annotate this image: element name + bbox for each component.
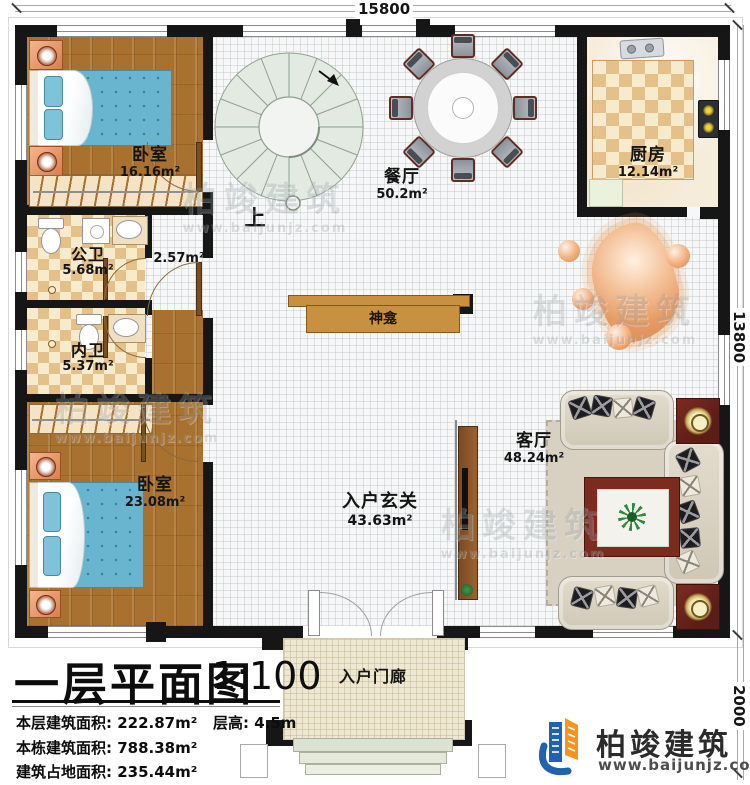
room-label-private-bath: 内卫5.37m² — [36, 342, 140, 375]
plan-scale: 1:100 — [212, 654, 322, 698]
nightstand — [29, 146, 63, 176]
dimension-top: 15800 — [355, 0, 413, 18]
nightstand — [29, 590, 61, 618]
kitchen-wall-bottom — [577, 207, 700, 217]
window-bottom-bedroom2 — [48, 626, 148, 638]
dining-chair — [389, 96, 413, 120]
room-label-public-bath: 公卫5.68m² — [36, 246, 140, 279]
title-rule-heavy — [12, 700, 280, 703]
dimension-line — [743, 25, 744, 780]
window-left-bedroom2 — [15, 470, 27, 565]
sofa-pillow — [679, 527, 701, 549]
side-table — [676, 398, 720, 444]
stair-area-label: 2.57m² — [146, 252, 212, 267]
room-label-porch: 入户门廊 — [303, 668, 443, 686]
info-row-1: 本层建筑面积: 222.87m² 层高: 4.5m — [16, 712, 296, 733]
sofa-pillow — [593, 584, 616, 607]
window-bottom-living1 — [480, 626, 535, 638]
kitchen-door-opening — [687, 207, 700, 217]
dining-table-hub — [452, 97, 474, 119]
stairs-up-label: 上 — [238, 206, 272, 230]
brand-url: www.baijunjz.com — [598, 756, 750, 774]
window-top-stairs — [243, 25, 353, 37]
sofa-pillow — [616, 587, 639, 610]
lamp-icon — [691, 600, 709, 618]
porch-side-pad — [478, 744, 506, 778]
lamp-icon — [691, 414, 709, 432]
pillow — [44, 109, 63, 140]
shrine-table: 神龛 — [306, 305, 460, 333]
decor-sphere — [666, 244, 690, 268]
porch-side-pad — [240, 744, 268, 778]
wall-v2-c — [145, 358, 152, 394]
room-label-kitchen: 厨房12.14m² — [600, 146, 696, 180]
floor-drain — [48, 286, 56, 294]
room-label-bedroom1: 卧室16.16m² — [98, 146, 202, 180]
sink-basin — [116, 220, 142, 239]
corridor-floor — [152, 310, 203, 394]
kitchen-wall-left — [577, 37, 587, 217]
tv-wall-line — [455, 420, 457, 600]
dining-set — [387, 32, 539, 184]
sofa-pillow — [590, 394, 613, 417]
entrance-door-leaf — [432, 590, 444, 636]
column-top-1 — [346, 19, 360, 37]
entrance-door-leaf — [308, 590, 320, 636]
pillow — [43, 536, 61, 576]
porch-step — [305, 764, 441, 775]
tv-cabinet — [458, 426, 478, 600]
dimension-line — [737, 25, 738, 780]
window-top-bedroom1 — [57, 25, 167, 37]
floor-plan: 神龛 — [0, 0, 750, 785]
dining-chair — [451, 34, 475, 58]
porch-step — [293, 738, 453, 752]
kitchen-cabinet — [589, 179, 623, 207]
dimension-porch-depth: 2000 — [730, 682, 748, 730]
room-label-living: 客厅48.24m² — [488, 432, 580, 466]
decor-sphere — [606, 324, 632, 350]
kitchen-sink — [619, 37, 664, 59]
dining-chair — [451, 158, 475, 182]
stove — [698, 100, 719, 138]
room-label-bedroom2: 卧室23.08m² — [100, 476, 210, 510]
window-right-living — [718, 335, 730, 405]
porch-step — [299, 752, 447, 764]
window-left-public-bath — [15, 252, 27, 292]
room-label-dining: 餐厅50.2m² — [352, 168, 452, 202]
pillow — [44, 76, 63, 107]
washing-machine — [82, 218, 110, 244]
kitchen-corner-column — [700, 207, 718, 219]
column-bottom-1 — [146, 622, 166, 642]
wall-h3 — [27, 394, 203, 402]
wall-v1-c — [203, 318, 213, 405]
wall-h2 — [27, 300, 145, 308]
title-rule-light — [12, 706, 280, 707]
pillow — [43, 492, 61, 532]
window-left-bedroom1 — [15, 85, 27, 160]
window-left-private-bath — [15, 330, 27, 370]
nightstand — [29, 40, 63, 70]
info-row-3: 建筑占地面积: 235.44m² — [16, 761, 197, 782]
coffee-table — [584, 477, 680, 557]
side-table — [676, 584, 720, 630]
shrine-label: 神龛 — [369, 311, 397, 327]
tv-screen — [462, 468, 468, 530]
wardrobe — [29, 404, 153, 434]
window-right-kitchen — [718, 60, 730, 130]
decor-sphere — [572, 288, 594, 310]
dining-chair — [513, 96, 537, 120]
decor-sphere — [558, 240, 580, 262]
sofa-pillow — [678, 474, 701, 497]
spiral-stairs — [209, 37, 367, 217]
room-label-foyer: 入户玄关43.63m² — [322, 492, 438, 529]
brand-logo-icon — [536, 714, 590, 776]
dimension-right: 13800 — [730, 308, 748, 366]
nightstand — [29, 452, 61, 480]
plant-icon — [461, 584, 473, 596]
sofa-pillow — [612, 397, 634, 419]
info-row-2: 本栋建筑面积: 788.38m² — [16, 737, 197, 758]
